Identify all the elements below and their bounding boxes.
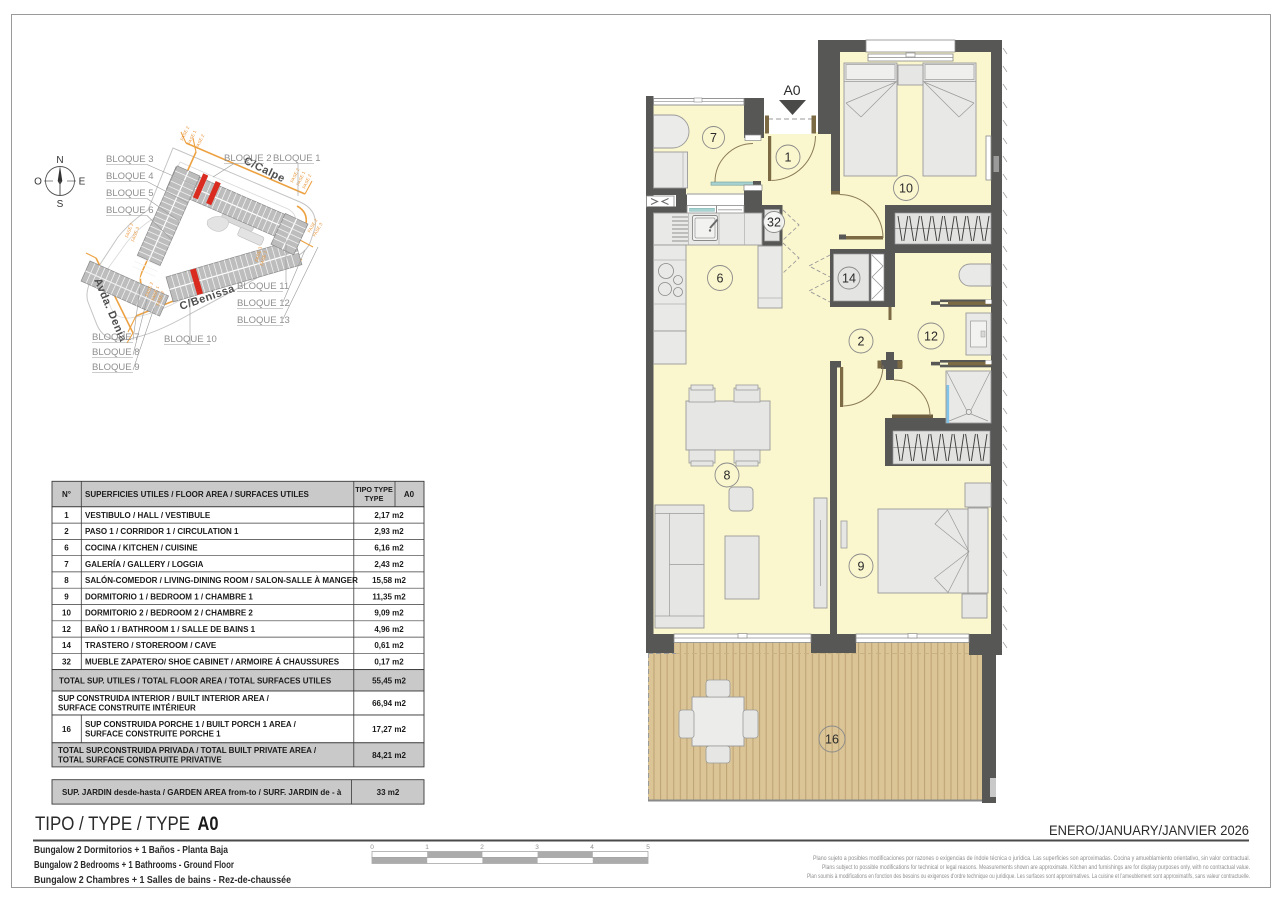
svg-text:Plano sujeto a posibles modifi: Plano sujeto a posibles modificaciones p… [813, 855, 1250, 862]
svg-text:16: 16 [62, 725, 71, 734]
svg-text:12: 12 [924, 330, 938, 344]
svg-text:ENERO/JANUARY/JANVIER 2026: ENERO/JANUARY/JANVIER 2026 [1049, 822, 1249, 838]
svg-text:15,58 m2: 15,58 m2 [372, 576, 406, 585]
svg-text:6,16 m2: 6,16 m2 [374, 544, 404, 553]
svg-text:16: 16 [825, 733, 839, 747]
svg-text:BLOQUE 5: BLOQUE 5 [106, 188, 154, 199]
svg-text:66,94 m2: 66,94 m2 [372, 699, 406, 708]
svg-text:TOTAL SUP. UTILES / TOTAL FLOO: TOTAL SUP. UTILES / TOTAL FLOOR AREA / T… [59, 676, 332, 685]
svg-text:SUPERFICIES UTILES / FLOOR ARE: SUPERFICIES UTILES / FLOOR AREA / SURFAC… [85, 490, 310, 499]
svg-text:COCINA / KITCHEN / CUISINE: COCINA / KITCHEN / CUISINE [85, 544, 198, 553]
svg-text:SUP. JARDIN desde-hasta / GARD: SUP. JARDIN desde-hasta / GARDEN AREA fr… [62, 788, 342, 797]
svg-text:8: 8 [64, 576, 69, 585]
svg-text:BLOQUE 7: BLOQUE 7 [92, 332, 140, 343]
svg-text:GALERÍA / GALLERY / LOGGIA: GALERÍA / GALLERY / LOGGIA [85, 560, 204, 569]
svg-text:2: 2 [480, 844, 484, 851]
svg-text:SURFACE CONSTRUITE PORCHE 1: SURFACE CONSTRUITE PORCHE 1 [85, 729, 221, 738]
svg-text:DORMITORIO 1 / BEDROOM 1 / CHA: DORMITORIO 1 / BEDROOM 1 / CHAMBRE 1 [85, 592, 253, 601]
svg-text:5: 5 [646, 844, 650, 851]
svg-text:7: 7 [710, 131, 717, 145]
svg-text:BLOQUE 6: BLOQUE 6 [106, 205, 154, 216]
svg-text:0,17 m2: 0,17 m2 [374, 658, 404, 667]
svg-text:1: 1 [425, 844, 429, 851]
svg-text:DORMITORIO 2 / BEDROOM 2 / CHA: DORMITORIO 2 / BEDROOM 2 / CHAMBRE 2 [85, 609, 253, 618]
svg-text:TIPO / TYPE / TYPE: TIPO / TYPE / TYPE [35, 813, 190, 835]
svg-text:14: 14 [842, 272, 856, 286]
svg-text:SURFACE CONSTRUITE INTÉRIEUR: SURFACE CONSTRUITE INTÉRIEUR [58, 703, 196, 712]
svg-text:BLOQUE 9: BLOQUE 9 [92, 362, 140, 373]
svg-text:Plan soumis à modifications en: Plan soumis à modifications en fonction … [807, 873, 1250, 880]
svg-text:O: O [34, 177, 42, 188]
svg-text:2: 2 [858, 335, 865, 349]
svg-text:6: 6 [717, 272, 724, 286]
svg-text:A0: A0 [198, 813, 219, 835]
svg-text:17,27 m2: 17,27 m2 [372, 725, 406, 734]
svg-text:6: 6 [64, 544, 69, 553]
svg-text:PASO 1 / CORRIDOR 1 / CIRCUL: PASO 1 / CORRIDOR 1 / CIRCULATION 1 [85, 527, 239, 536]
svg-text:VESTIBULO / HALL / VESTIBULE: VESTIBULO / HALL / VESTIBULE [85, 511, 211, 520]
svg-text:BLOQUE 4: BLOQUE 4 [106, 171, 154, 182]
svg-text:BLOQUE 8: BLOQUE 8 [92, 347, 140, 358]
svg-text:BAÑO 1 / BATHROOM 1 / SALLE DE: BAÑO 1 / BATHROOM 1 / SALLE DE BAINS 1 [85, 625, 256, 634]
svg-text:9: 9 [64, 592, 69, 601]
svg-text:11,35 m2: 11,35 m2 [372, 592, 406, 601]
svg-text:1: 1 [785, 151, 792, 165]
svg-text:BLOQUE 3: BLOQUE 3 [106, 154, 154, 165]
svg-text:7: 7 [64, 560, 69, 569]
svg-text:9,09 m2: 9,09 m2 [374, 609, 404, 618]
svg-text:BLOQUE 10: BLOQUE 10 [164, 334, 217, 345]
svg-text:1: 1 [64, 511, 69, 520]
svg-text:3: 3 [535, 844, 539, 851]
svg-text:2,43 m2: 2,43 m2 [374, 560, 404, 569]
svg-text:BLOQUE 11: BLOQUE 11 [237, 281, 289, 292]
svg-text:10: 10 [62, 609, 71, 618]
svg-text:Plans subject to possible modi: Plans subject to possible modifications … [822, 864, 1250, 871]
svg-text:TIPO TYPE: TIPO TYPE [355, 485, 393, 494]
svg-text:32: 32 [62, 658, 71, 667]
svg-text:TOTAL SURFACE CONSTRUITE PRIVA: TOTAL SURFACE CONSTRUITE PRIVATIVE [58, 755, 222, 764]
svg-text:84,21 m2: 84,21 m2 [372, 751, 406, 760]
svg-text:8: 8 [724, 469, 731, 483]
svg-text:BLOQUE 2: BLOQUE 2 [224, 153, 272, 164]
svg-text:4,96 m2: 4,96 m2 [374, 625, 404, 634]
svg-text:2: 2 [64, 527, 69, 536]
svg-text:S: S [57, 199, 64, 210]
svg-text:Bungalow 2 Bedrooms + 1 Bathro: Bungalow 2 Bedrooms + 1 Bathrooms - Grou… [34, 860, 234, 871]
svg-text:14: 14 [62, 641, 71, 650]
svg-text:BLOQUE 12: BLOQUE 12 [237, 298, 290, 309]
svg-text:2,93 m2: 2,93 m2 [374, 527, 404, 536]
svg-text:A0: A0 [404, 490, 415, 499]
svg-text:33 m2: 33 m2 [377, 788, 400, 797]
svg-text:SUP CONSTRUIDA INTERIOR / BUIL: SUP CONSTRUIDA INTERIOR / BUILT INTERIOR… [58, 694, 270, 703]
svg-text:4: 4 [590, 844, 594, 851]
svg-text:BLOQUE 13: BLOQUE 13 [237, 315, 290, 326]
svg-text:32: 32 [767, 216, 781, 230]
svg-text:TRASTERO / STOREROOM / CAVE: TRASTERO / STOREROOM / CAVE [85, 641, 217, 650]
svg-text:0: 0 [370, 844, 374, 851]
svg-text:TYPE: TYPE [365, 494, 384, 503]
svg-text:Bungalow 2 Chambres + 1 Salles: Bungalow 2 Chambres + 1 Salles de bains … [34, 875, 291, 886]
svg-text:BLOQUE 1: BLOQUE 1 [273, 153, 321, 164]
svg-text:10: 10 [899, 182, 913, 196]
svg-text:MUEBLE ZAPATERO/ SHOE CABINET: MUEBLE ZAPATERO/ SHOE CABINET / ARMOIRE … [85, 658, 340, 667]
svg-text:2,17 m2: 2,17 m2 [374, 511, 404, 520]
svg-text:N°: N° [62, 490, 71, 499]
svg-text:55,45 m2: 55,45 m2 [372, 676, 406, 685]
svg-text:9: 9 [858, 560, 865, 574]
svg-text:0,61 m2: 0,61 m2 [374, 641, 404, 650]
svg-text:E: E [79, 177, 86, 188]
svg-text:A0: A0 [783, 82, 800, 98]
svg-text:Bungalow 2 Dormitorios + 1 Bañ: Bungalow 2 Dormitorios + 1 Baños - Plant… [34, 845, 228, 856]
svg-text:TOTAL SUP.CONSTRUIDA PRIVADA /: TOTAL SUP.CONSTRUIDA PRIVADA / TOTAL BUI… [58, 746, 317, 755]
svg-text:N: N [56, 155, 63, 166]
svg-text:12: 12 [62, 625, 71, 634]
svg-text:SALÓN-COMEDOR / LIVING-DINING: SALÓN-COMEDOR / LIVING-DINING ROOM / SAL… [85, 576, 358, 585]
svg-text:SUP CONSTRUIDA PORCHE 1 / BUIL: SUP CONSTRUIDA PORCHE 1 / BUILT PORCH 1 … [85, 720, 297, 729]
